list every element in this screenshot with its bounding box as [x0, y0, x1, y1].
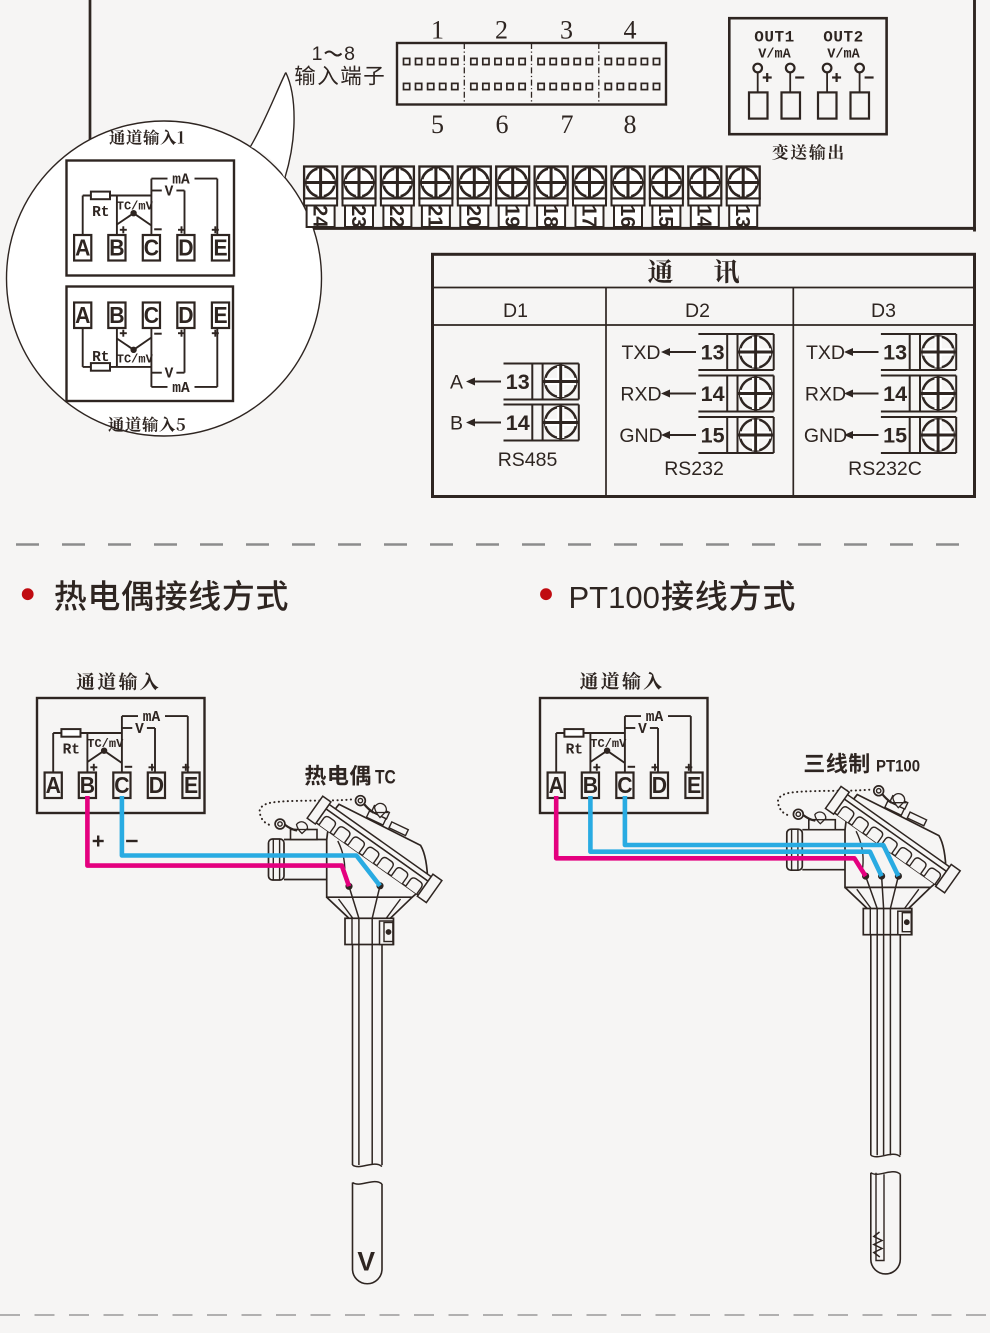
svg-text:mA: mA [646, 710, 664, 726]
svg-text:B: B [109, 302, 124, 328]
svg-text:mA: mA [143, 710, 161, 726]
svg-text:C: C [617, 772, 632, 798]
svg-text:D: D [178, 235, 193, 261]
svg-text:E: E [184, 772, 198, 798]
svg-text:2: 2 [495, 16, 508, 45]
svg-text:C: C [144, 235, 159, 261]
svg-text:6: 6 [496, 110, 509, 139]
svg-text:A: A [450, 372, 463, 394]
svg-text:TXD: TXD [622, 342, 661, 364]
svg-text:RS232: RS232 [664, 458, 724, 480]
svg-text:17: 17 [577, 205, 600, 228]
svg-text:7: 7 [561, 110, 574, 139]
svg-text:13: 13 [883, 340, 907, 364]
svg-text:RXD: RXD [805, 384, 846, 406]
svg-text:15: 15 [883, 423, 907, 447]
svg-text:V: V [357, 1247, 375, 1277]
svg-text:OUT2: OUT2 [823, 29, 863, 47]
svg-text:13: 13 [731, 205, 754, 228]
svg-text:15: 15 [701, 423, 725, 447]
svg-text:A: A [75, 235, 90, 261]
svg-text:B: B [109, 235, 124, 261]
svg-text:B: B [80, 772, 95, 798]
svg-text:PT100: PT100 [876, 758, 920, 776]
svg-text:14: 14 [506, 411, 530, 435]
svg-text:24: 24 [308, 205, 331, 228]
svg-text:mA: mA [172, 173, 190, 189]
svg-text:14: 14 [883, 382, 907, 406]
svg-text:RS232C: RS232C [848, 458, 922, 480]
svg-text:Rt: Rt [566, 743, 583, 759]
svg-text:3: 3 [560, 16, 573, 45]
svg-text:TC/mV: TC/mV [117, 200, 154, 214]
svg-text:Rt: Rt [63, 743, 80, 759]
svg-text:E: E [213, 302, 227, 328]
svg-text:RXD: RXD [620, 384, 661, 406]
svg-text:RS485: RS485 [498, 449, 558, 471]
svg-text:Rt: Rt [92, 205, 109, 221]
svg-text:E: E [213, 235, 227, 261]
svg-text:D2: D2 [685, 300, 710, 322]
svg-text:22: 22 [385, 205, 408, 228]
svg-text:OUT1: OUT1 [754, 29, 794, 47]
svg-text:1: 1 [312, 43, 323, 65]
svg-text:TC: TC [375, 766, 396, 788]
svg-text:D1: D1 [503, 300, 528, 322]
svg-text:B: B [583, 772, 598, 798]
svg-text:8: 8 [344, 43, 355, 65]
svg-text:5: 5 [431, 110, 444, 139]
svg-text:TC/mV: TC/mV [117, 353, 154, 367]
svg-text:13: 13 [506, 370, 530, 394]
svg-text:A: A [549, 772, 564, 798]
svg-text:D3: D3 [871, 300, 896, 322]
svg-text:A: A [75, 302, 90, 328]
svg-text:23: 23 [347, 205, 370, 228]
svg-text:V/mA: V/mA [758, 48, 791, 63]
svg-text:D: D [149, 772, 164, 798]
svg-text:TXD: TXD [806, 342, 845, 364]
svg-text:1: 1 [431, 16, 444, 45]
svg-text:D: D [652, 772, 667, 798]
svg-text:21: 21 [424, 205, 447, 228]
svg-text:GND: GND [804, 425, 847, 447]
svg-text:20: 20 [462, 205, 485, 228]
svg-text:PT100: PT100 [569, 580, 660, 615]
svg-text:18: 18 [539, 205, 562, 228]
svg-text:B: B [450, 413, 463, 435]
svg-text:A: A [46, 772, 61, 798]
svg-text:15: 15 [654, 205, 677, 228]
svg-text:C: C [144, 302, 159, 328]
svg-text:16: 16 [616, 205, 639, 228]
svg-text:8: 8 [624, 110, 637, 139]
svg-text:19: 19 [501, 205, 524, 228]
svg-text:TC/mV: TC/mV [590, 737, 627, 751]
svg-text:D: D [178, 302, 193, 328]
svg-text:Rt: Rt [92, 350, 109, 366]
svg-text:TC/mV: TC/mV [87, 737, 124, 751]
svg-text:E: E [687, 772, 701, 798]
svg-text:4: 4 [624, 16, 637, 45]
svg-text:C: C [114, 772, 129, 798]
svg-text:mA: mA [172, 381, 190, 397]
svg-text:V/mA: V/mA [827, 48, 860, 63]
svg-text:13: 13 [701, 340, 725, 364]
svg-text:14: 14 [701, 382, 725, 406]
svg-text:GND: GND [619, 425, 662, 447]
svg-text:14: 14 [693, 205, 716, 228]
